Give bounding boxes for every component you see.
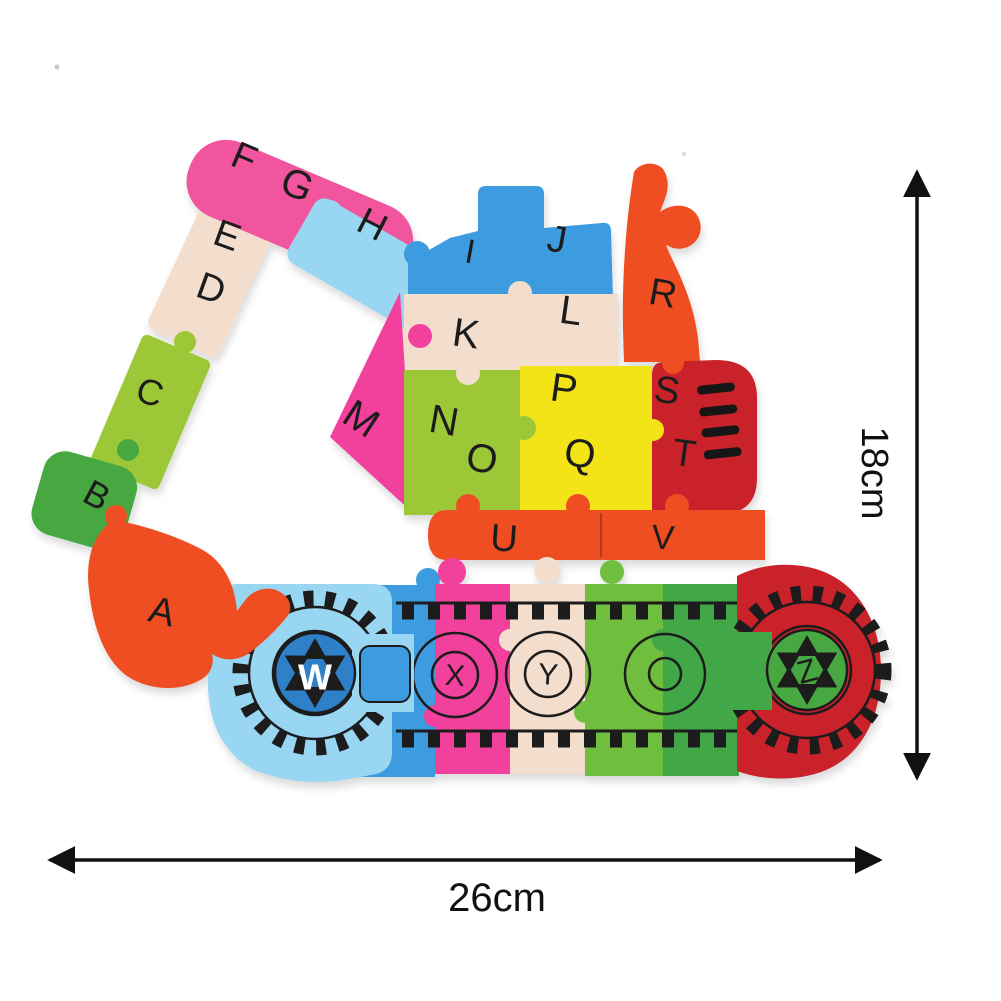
excavator-puzzle-illustration: A B C D E F G H I J K L M N O P Q R S T … <box>0 0 1001 1001</box>
excavator-puzzle: A B C D E F G H I J K L M N O P Q R S T … <box>26 128 883 782</box>
puzzle-piece-no <box>404 361 520 515</box>
cab-piece-ij <box>404 186 613 300</box>
width-label: 26cm <box>448 876 546 920</box>
letter-u: U <box>489 517 519 561</box>
height-label: 18cm <box>853 427 895 520</box>
letter-v: V <box>650 518 676 558</box>
product-photo: A B C D E F G H I J K L M N O P Q R S T … <box>0 0 1001 1001</box>
letter-x: X <box>444 659 466 693</box>
exhaust-pipe-piece-r <box>623 164 701 362</box>
dust-speck <box>55 65 60 70</box>
dust-speck <box>682 152 686 156</box>
letter-w: W <box>298 657 332 698</box>
letter-y: Y <box>537 658 559 692</box>
puzzle-piece-kl <box>404 281 618 370</box>
letter-q: Q <box>562 430 599 478</box>
width-dimension: 26cm <box>50 860 880 920</box>
